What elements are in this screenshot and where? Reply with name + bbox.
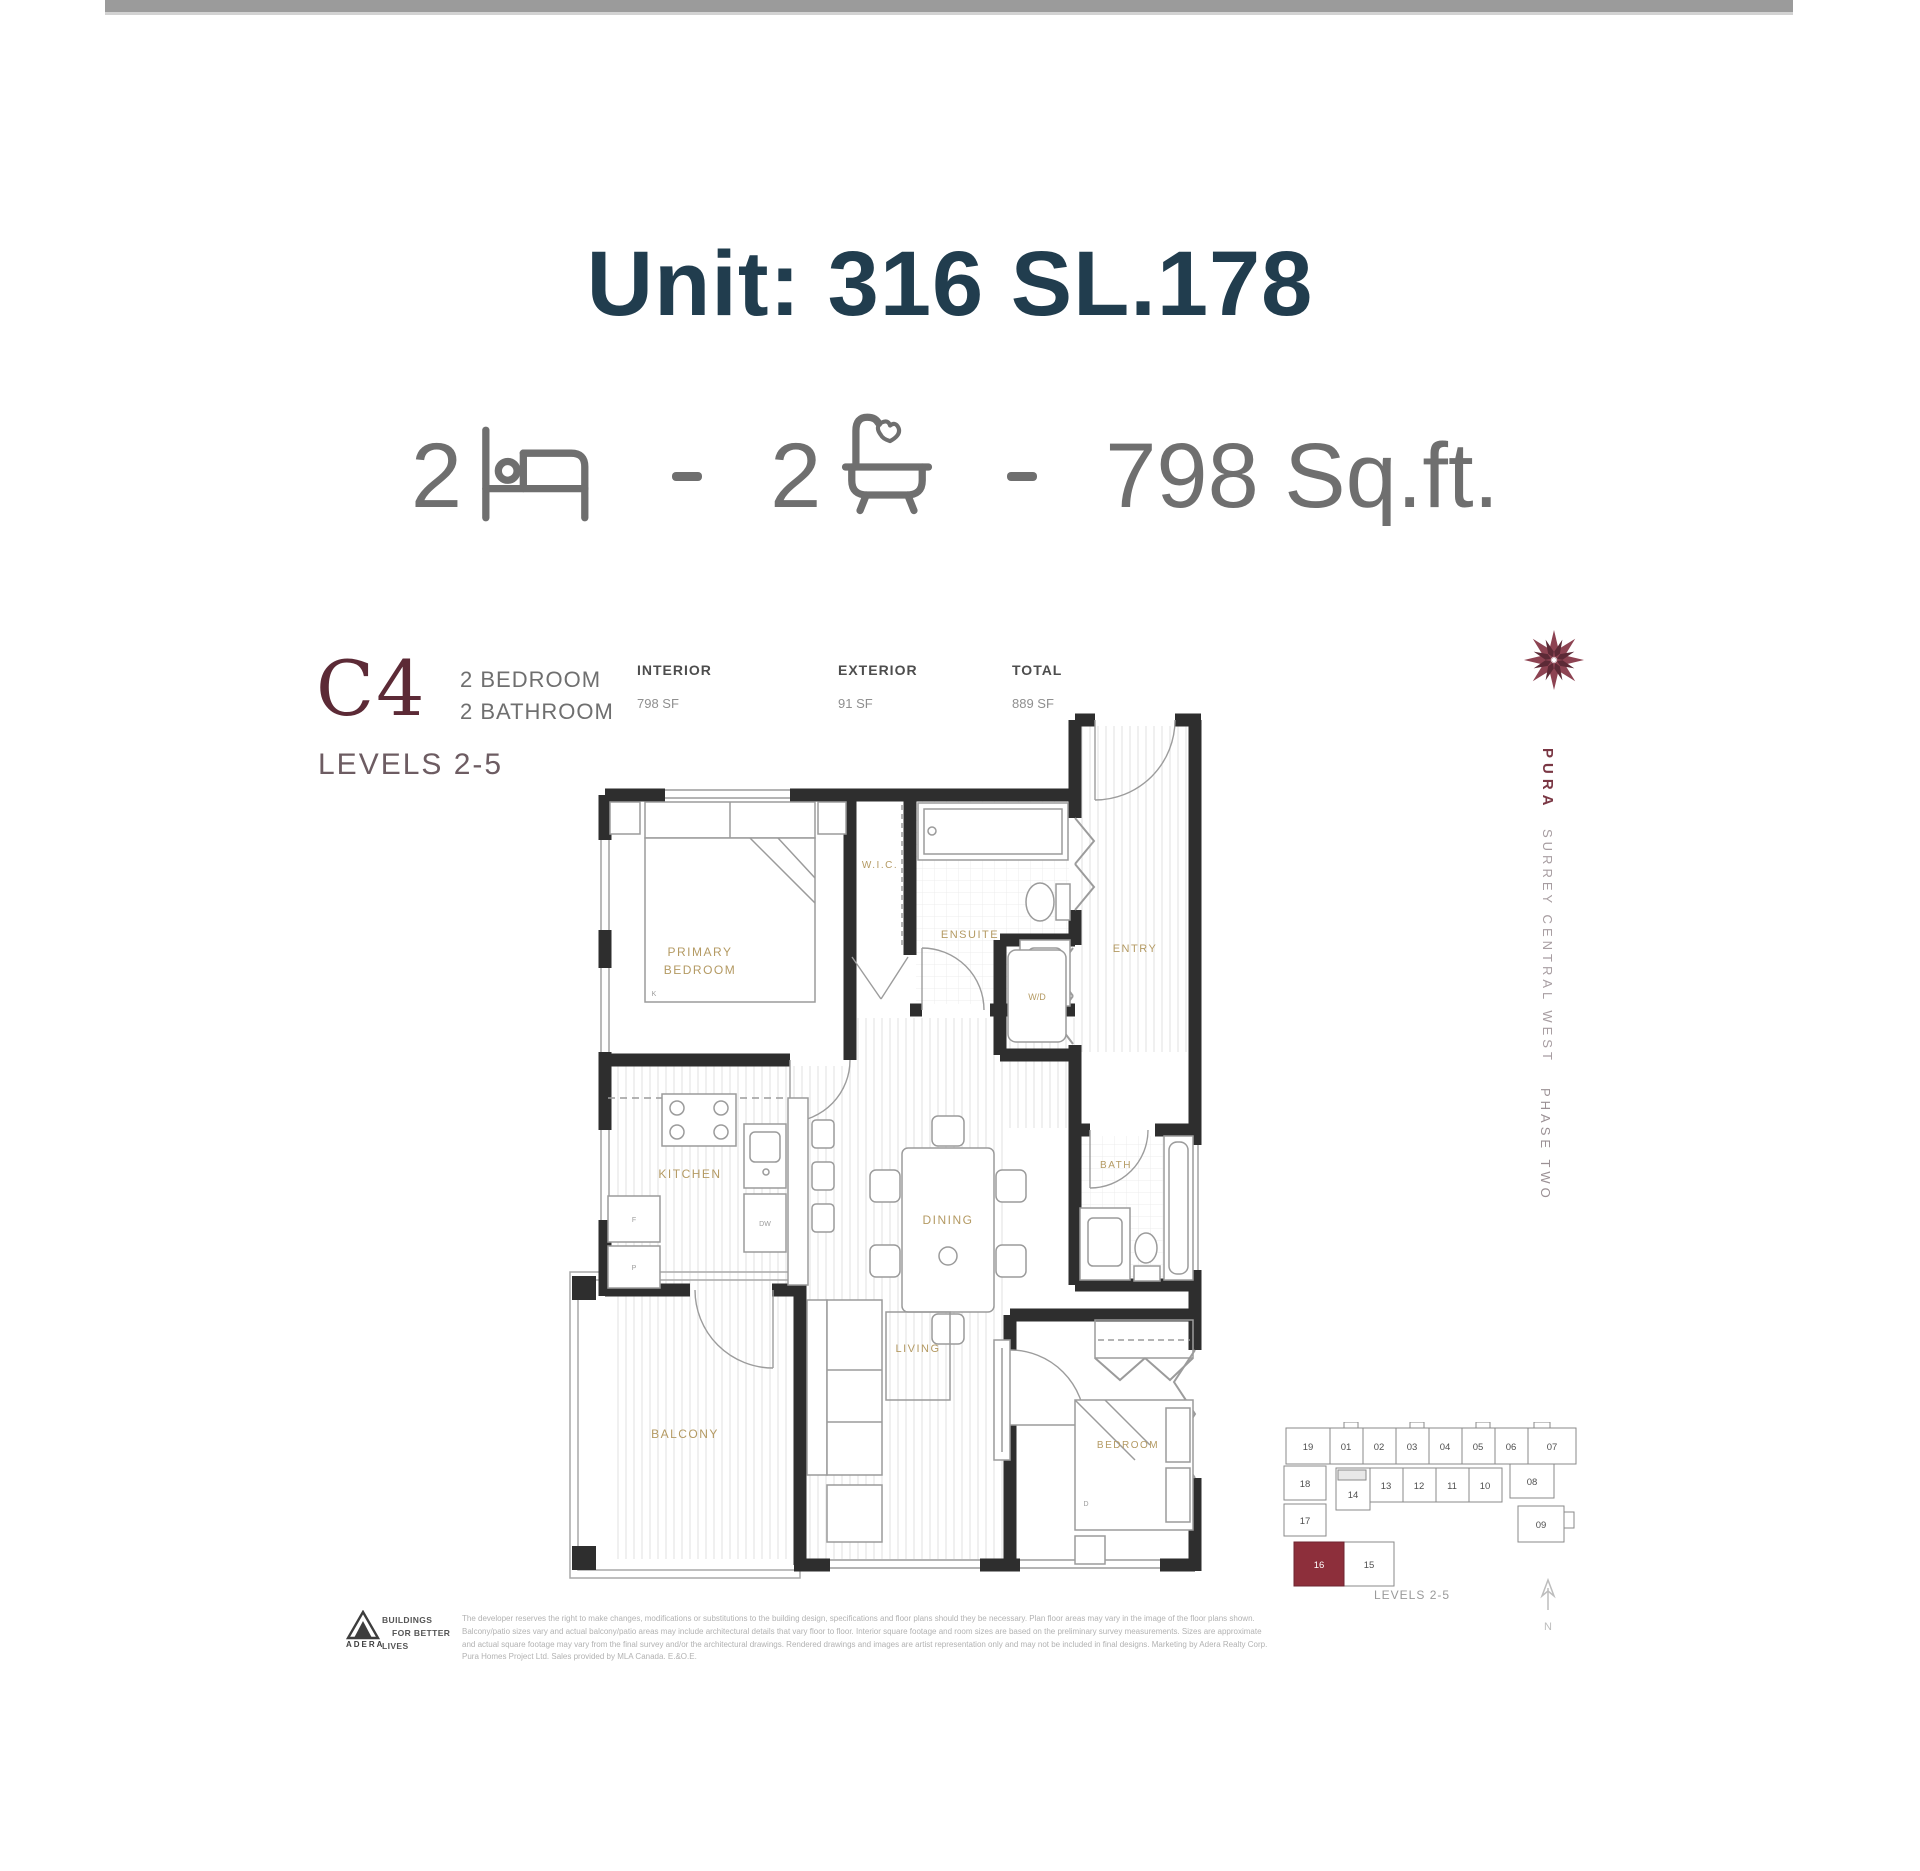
separator-dash <box>672 472 702 481</box>
keyplan-unit: 03 <box>1407 1442 1418 1453</box>
footer-disclaimer: The developer reserves the right to make… <box>462 1613 1270 1664</box>
keyplan-unit: 06 <box>1506 1442 1517 1453</box>
pura-star-logo <box>1522 626 1586 694</box>
floorplan-drawing: PRIMARY BEDROOM K W.I.C. ENSUITE ENTRY W… <box>550 700 1210 1590</box>
bed-size-k: K <box>652 991 657 998</box>
brand-name: PURA <box>1539 748 1556 811</box>
keyplan-unit: 11 <box>1447 1481 1457 1492</box>
plan-type-bedrooms: 2 BEDROOM <box>460 664 614 696</box>
keyplan-unit: 02 <box>1374 1442 1385 1453</box>
footer-tagline-3: LIVES <box>382 1640 450 1653</box>
bedroom-count: 2 <box>411 424 462 529</box>
adera-logo-text: ADERA <box>346 1640 384 1649</box>
appliance-p: P <box>632 1265 637 1272</box>
adera-logo-icon <box>346 1610 380 1640</box>
keyplan-unit: 12 <box>1414 1481 1425 1492</box>
room-label-wd: W/D <box>1028 992 1046 1002</box>
bathroom-count: 2 <box>770 424 821 529</box>
room-label-entry: ENTRY <box>1113 943 1158 955</box>
area-value: 798 Sq.ft. <box>1105 424 1499 529</box>
page-title: Unit: 316 SL.178 <box>0 232 1900 337</box>
room-label-ensuite: ENSUITE <box>941 929 999 941</box>
stat-label: TOTAL <box>1012 662 1162 678</box>
keyplan-unit: 18 <box>1300 1479 1311 1490</box>
room-label-dining: DINING <box>923 1213 974 1227</box>
unit-summary: 2 2 798 Sq.ft. <box>0 424 1910 529</box>
room-label-bath: BATH <box>1100 1160 1132 1171</box>
keyplan-unit: 07 <box>1547 1442 1558 1453</box>
keyplan-unit: 13 <box>1381 1481 1392 1492</box>
appliance-dw: DW <box>759 1221 771 1228</box>
keyplan-unit: 01 <box>1341 1442 1352 1453</box>
stat-label: EXTERIOR <box>838 662 988 678</box>
north-arrow-icon: N <box>1534 1576 1562 1638</box>
plan-levels: LEVELS 2-5 <box>318 748 503 782</box>
appliance-f: F <box>632 1217 636 1224</box>
stat-label: INTERIOR <box>637 662 787 678</box>
project-name: SURREY CENTRAL WEST <box>1540 811 1555 1064</box>
keyplan-unit: 17 <box>1300 1516 1311 1527</box>
keyplan-unit: 19 <box>1303 1442 1314 1453</box>
keyplan-unit: 04 <box>1440 1442 1451 1453</box>
bed-icon <box>476 424 604 529</box>
page: Unit: 316 SL.178 2 2 <box>0 0 1920 1871</box>
room-label-bedroom: BEDROOM <box>1097 1440 1159 1451</box>
footer-tagline-1: BUILDINGS <box>382 1614 450 1627</box>
keyplan-caption: LEVELS 2-5 <box>1374 1588 1450 1602</box>
keyplan-unit: 08 <box>1527 1477 1538 1488</box>
keyplan: 19 01 02 03 04 05 06 07 18 14 13 12 11 1… <box>1282 1422 1627 1592</box>
keyplan-unit: 10 <box>1480 1481 1491 1492</box>
keyplan-unit: 15 <box>1364 1560 1375 1571</box>
bathtub-icon <box>835 410 939 529</box>
room-label-kitchen: KITCHEN <box>658 1167 721 1181</box>
plan-code: C4 <box>316 644 427 733</box>
room-label-living: LIVING <box>895 1343 940 1355</box>
footer-tagline: BUILDINGS FOR BETTER LIVES <box>382 1614 450 1652</box>
separator-dash <box>1007 472 1037 481</box>
project-phase-vertical: PHASE TWO <box>1538 1088 1553 1202</box>
keyplan-unit-highlighted: 16 <box>1314 1560 1325 1571</box>
room-label-balcony: BALCONY <box>651 1427 719 1441</box>
room-label-wic: W.I.C. <box>862 860 898 871</box>
top-scan-edge <box>105 0 1793 15</box>
room-label-primary-2: BEDROOM <box>664 963 737 977</box>
keyplan-unit: 09 <box>1536 1520 1547 1531</box>
keyplan-unit: 05 <box>1473 1442 1484 1453</box>
north-label: N <box>1544 1621 1552 1633</box>
keyplan-unit: 14 <box>1348 1490 1359 1501</box>
project-brand-vertical: PURASURREY CENTRAL WEST <box>1538 748 1556 1063</box>
footer-tagline-2: FOR BETTER <box>382 1627 450 1640</box>
room-label-primary-1: PRIMARY <box>668 945 733 959</box>
bed-size-d: D <box>1083 1501 1088 1508</box>
